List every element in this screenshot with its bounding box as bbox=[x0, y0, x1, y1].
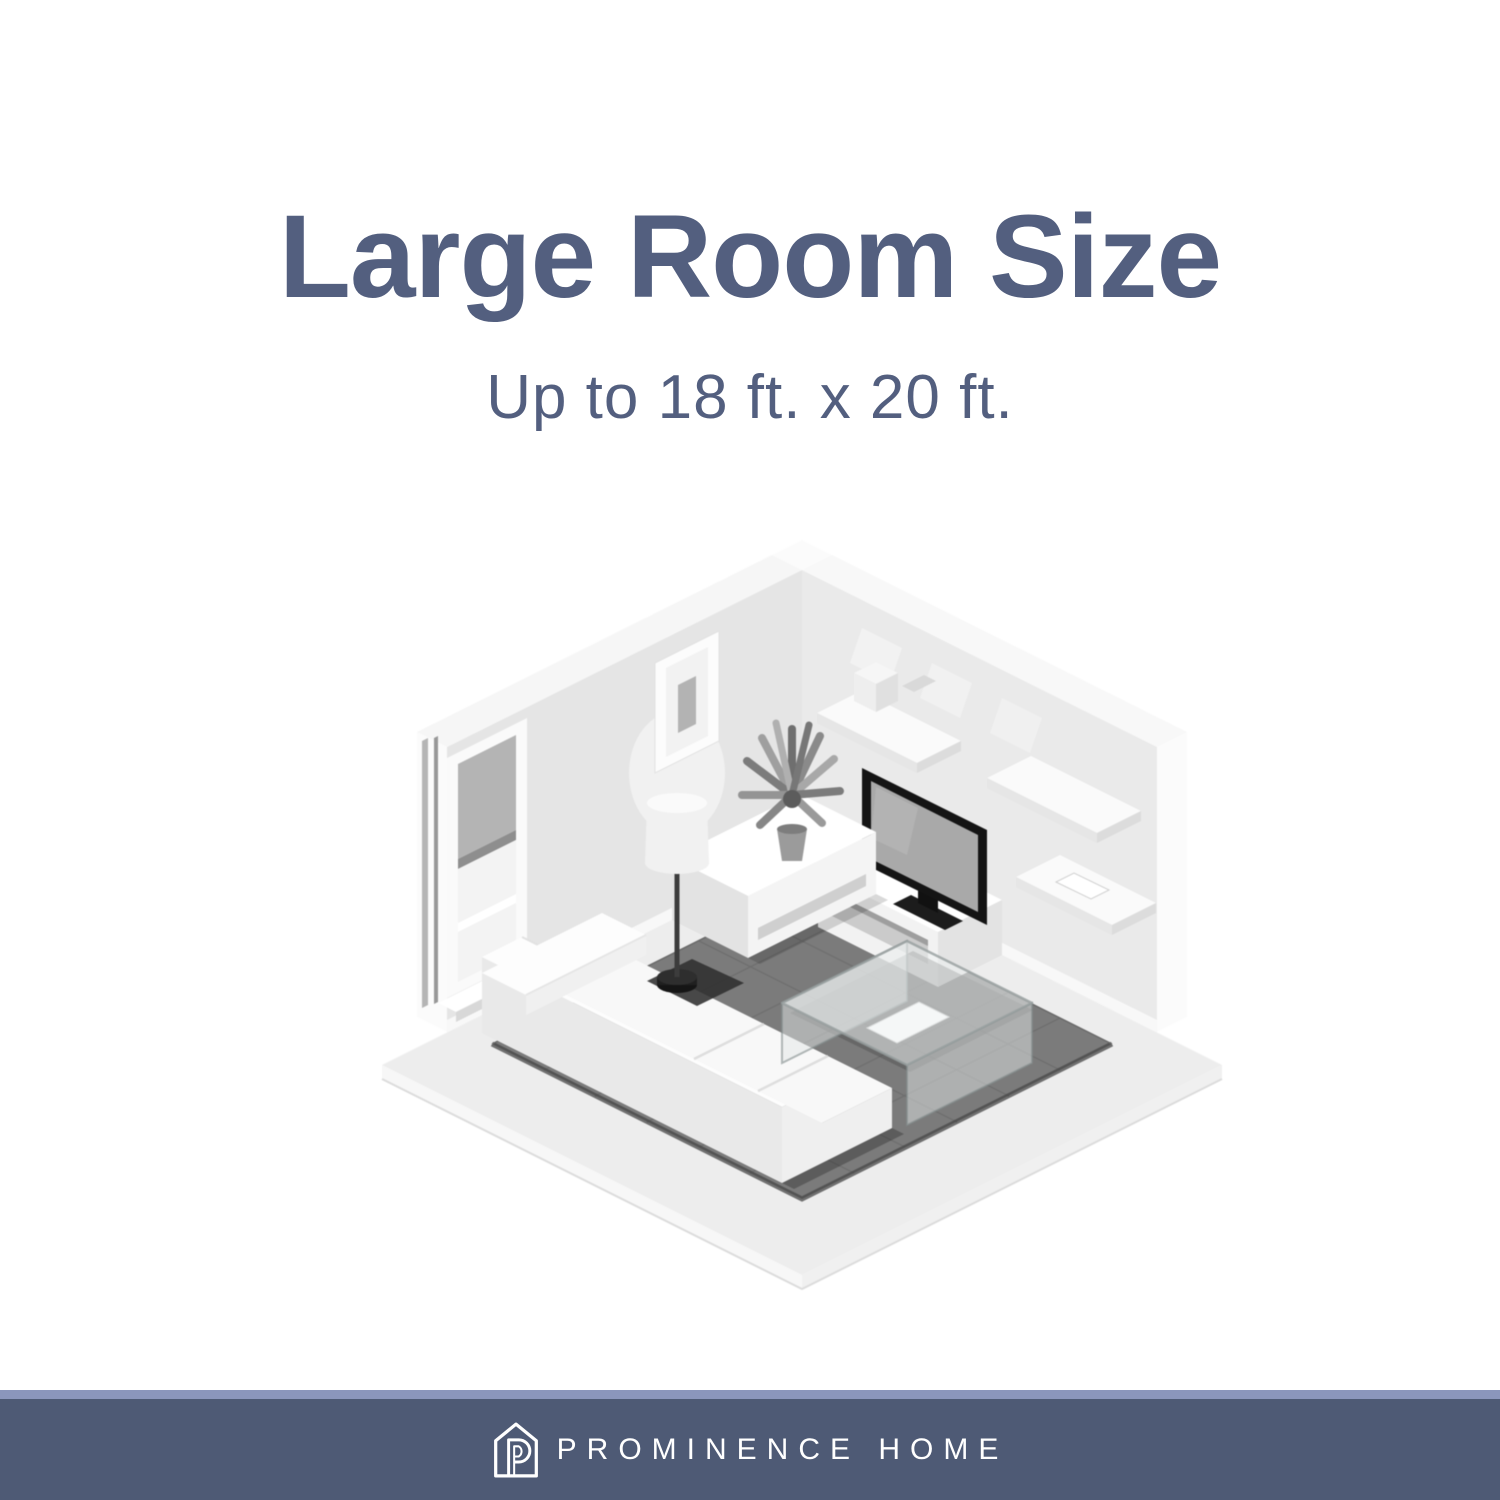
logo-p-outer bbox=[508, 1439, 529, 1475]
right-wall-end-face bbox=[1157, 732, 1187, 1032]
isometric-living-room-graphic bbox=[362, 533, 1242, 1313]
wall-cut-layer bbox=[434, 736, 438, 1004]
footer-accent-bar bbox=[0, 1390, 1500, 1399]
brand-name: PROMINENCE HOME bbox=[557, 1433, 1009, 1467]
lamp-pole bbox=[675, 868, 680, 977]
picture-art bbox=[678, 676, 696, 733]
page-subtitle: Up to 18 ft. x 20 ft. bbox=[0, 362, 1500, 433]
prominence-home-logo bbox=[492, 1421, 540, 1479]
plant-pot-rim bbox=[777, 824, 807, 834]
lamp-shade-top bbox=[647, 793, 707, 813]
footer: PROMINENCE HOME bbox=[0, 1399, 1500, 1500]
left-wall-end-face bbox=[417, 732, 447, 1032]
page-title: Large Room Size bbox=[0, 196, 1500, 320]
lamp-shade bbox=[645, 803, 709, 874]
room-illustration bbox=[362, 533, 1242, 1313]
wall-cut-layer bbox=[422, 738, 428, 1008]
header: Large Room Size Up to 18 ft. x 20 ft. bbox=[0, 196, 1500, 433]
plant-center bbox=[783, 790, 801, 808]
